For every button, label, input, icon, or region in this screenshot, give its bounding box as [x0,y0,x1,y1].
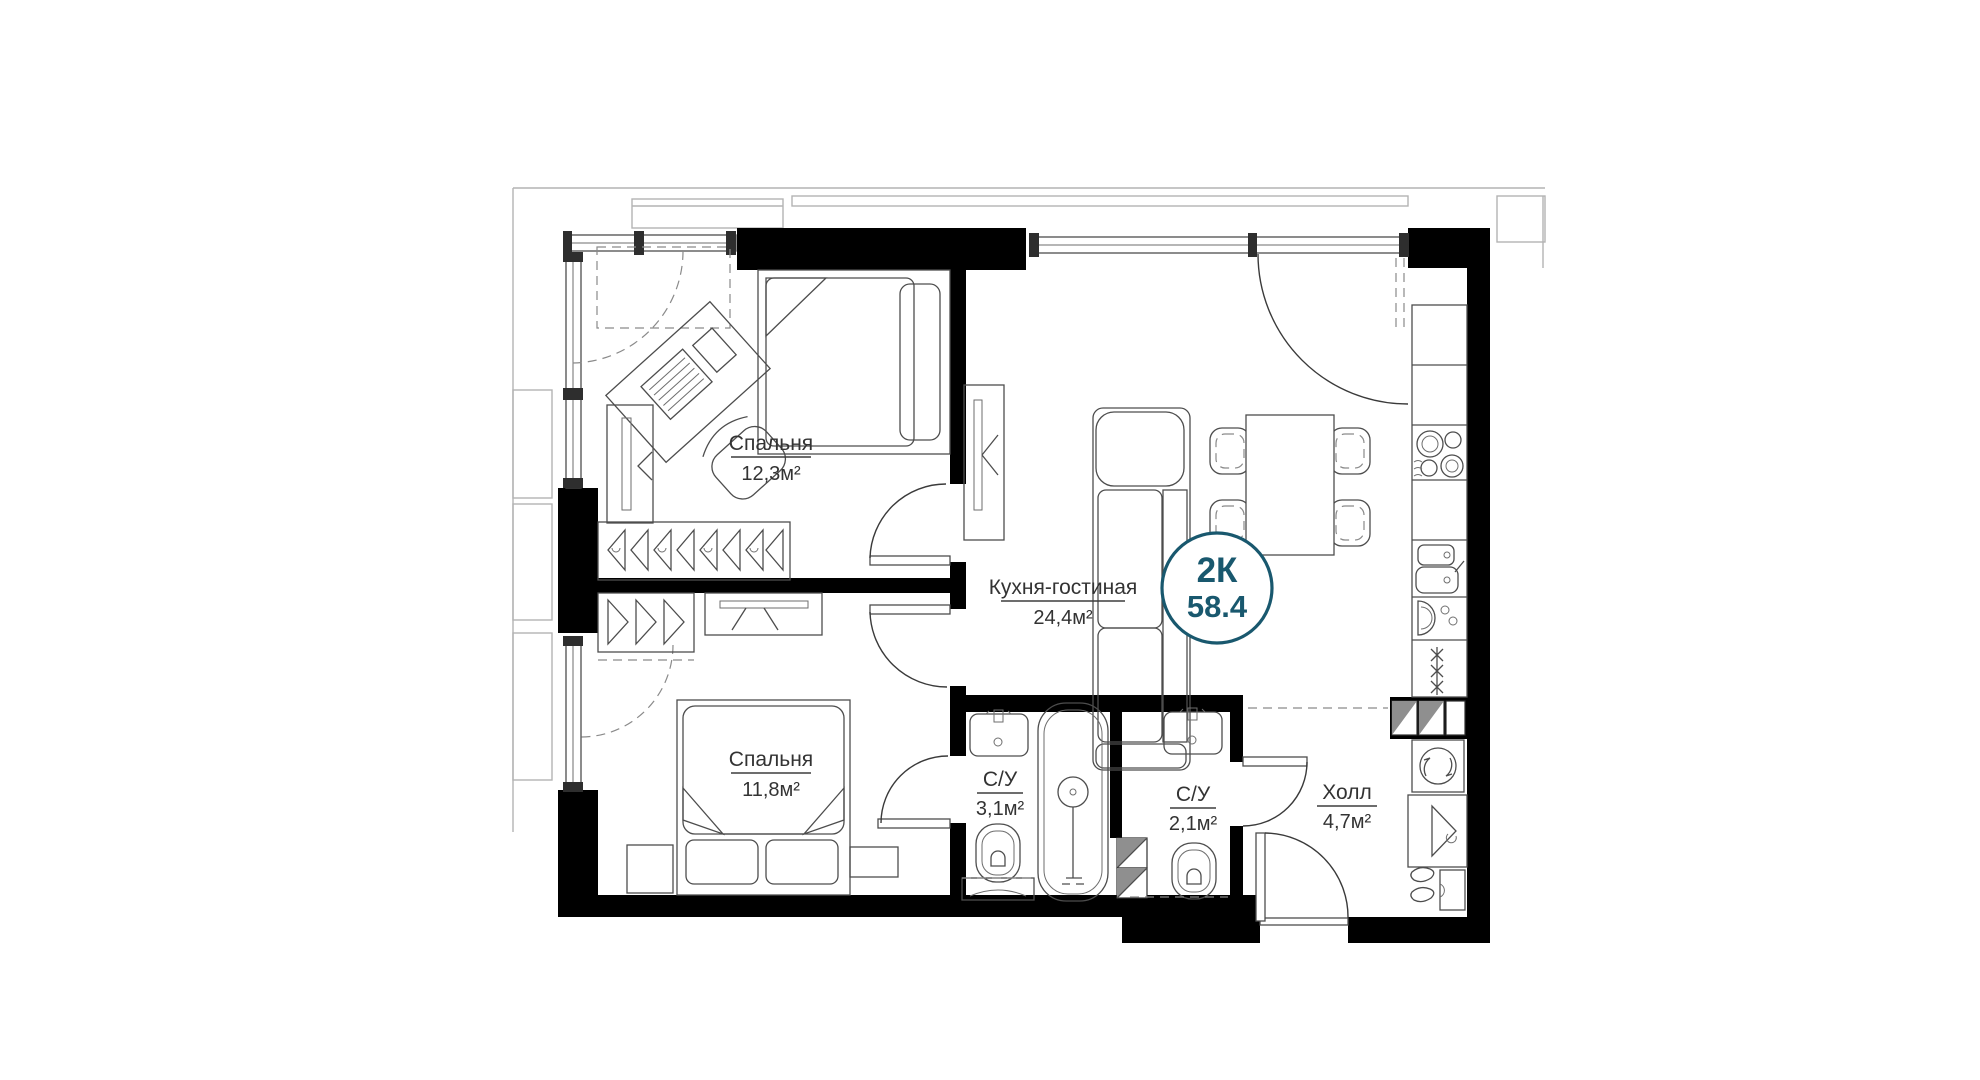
bedroom2-furniture [598,593,898,895]
floor-plan: { "floorplan": { "unit_badge": { "label"… [0,0,1980,1080]
tv-console [964,385,1004,540]
washing-machine [1412,740,1464,792]
dining-set [1210,415,1370,555]
label-bedroom2: Спальня 11,8м² [729,748,813,801]
room-name: Спальня [729,432,813,455]
label-bathroom1: С/У 3,1м² [976,768,1025,820]
washbasin [1164,708,1222,754]
label-bathroom2: С/У 2,1м² [1169,783,1218,835]
bedroom1-furniture [597,247,950,580]
washbasin [970,710,1028,756]
badge-area: 58.4 [1187,589,1248,624]
sofa-armrest [1096,744,1186,768]
hall-wardrobe [1408,795,1467,867]
window-kitchen-top [1029,233,1409,257]
room-area: 12,3м² [741,463,801,485]
room-area: 24,4м² [1033,607,1093,629]
single-bed [758,270,950,454]
label-bedroom1: Спальня 12,3м² [729,432,813,485]
dining-table [1246,415,1334,555]
room-name: С/У [1176,783,1211,806]
door-bedroom1 [870,484,950,565]
cooktop [1414,431,1463,477]
closet-hangers [598,593,694,660]
kitchen-sink [1416,545,1464,593]
sofa-chaise [1096,412,1184,486]
tv-stand [705,593,822,635]
window-swing-bedroom1 [571,251,683,363]
kitchen-counter [1412,305,1467,697]
floor-plan-canvas: Спальня 12,3м² Спальня 11,8м² Кухня-гост… [0,0,1980,1080]
shoes [1411,868,1434,902]
badge-type: 2К [1197,551,1238,590]
wardrobe-hangers [598,522,790,580]
door-bathroom2 [1243,757,1307,826]
room-name: Спальня [729,748,813,771]
entrance-door [1256,833,1348,925]
window-bedroom2-left [563,636,583,792]
window-bedroom1-top [563,231,736,255]
door-bedroom2 [870,605,950,687]
room-area: 3,1м² [976,798,1025,820]
room-area: 2,1м² [1169,813,1218,835]
room-area: 4,7м² [1323,811,1372,833]
unit-badge: 2К 58.4 [1162,533,1272,643]
room-area: 11,8м² [742,779,800,801]
label-kitchen-living: Кухня-гостиная 24,4м² [989,576,1138,629]
window-bedroom1-left [563,252,583,488]
room-name: С/У [983,768,1018,791]
wardrobe-dashed [597,247,730,328]
hall-furniture [1408,740,1467,910]
door-bathroom1 [878,756,950,828]
vent-duct-icons [1117,701,1465,898]
room-name: Кухня-гостиная [989,576,1138,599]
room-name: Холл [1322,781,1372,804]
nightstand [627,845,673,893]
shoe-cabinet [1440,870,1465,910]
oven [1418,601,1457,635]
toilet [1172,843,1216,899]
window-swing-bedroom2 [581,645,673,737]
toilet [976,824,1020,882]
balcony-door-kitchen [1258,254,1408,404]
nightstand [850,847,898,877]
refrigerator [1431,647,1443,695]
label-hall: Холл 4,7м² [1317,781,1377,833]
